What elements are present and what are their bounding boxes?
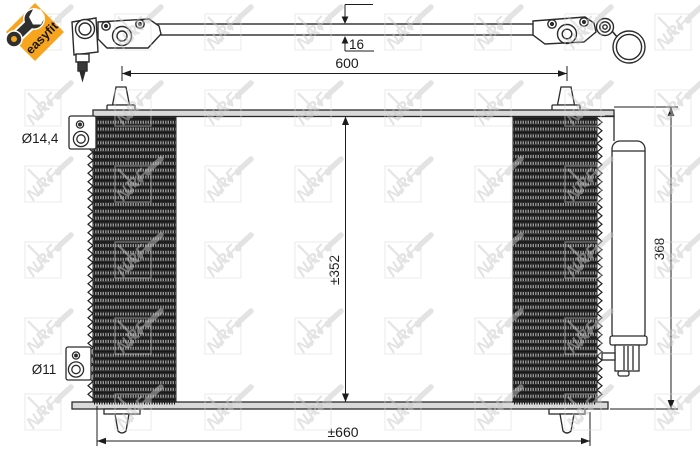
dim-pin-spacing-value: 600 <box>335 55 359 71</box>
top-view-left-fitting <box>72 18 98 80</box>
inlet-fitting-top <box>69 116 96 149</box>
label-top-fitting-diameter: Ø14,4 <box>22 131 59 146</box>
dim-thickness-value: 16 <box>349 37 364 52</box>
front-view-drawing <box>66 87 647 433</box>
dim-core-height-value: ±352 <box>327 255 342 285</box>
easyfit-badge: easyfit <box>6 3 64 61</box>
dimension-pin-spacing: 600 <box>122 55 567 81</box>
dimension-total-width: ±660 <box>97 406 590 446</box>
receiver-drier <box>602 141 647 376</box>
outlet-fitting-bottom <box>66 347 91 380</box>
top-header-bar <box>93 110 614 117</box>
label-bottom-fitting-diameter: Ø11 <box>32 362 57 377</box>
dim-total-width-value: ±660 <box>327 424 358 440</box>
top-view-grommet-ring <box>597 19 646 64</box>
condenser-technical-drawing: NRF <box>0 0 700 457</box>
drier-bracket <box>605 116 614 141</box>
